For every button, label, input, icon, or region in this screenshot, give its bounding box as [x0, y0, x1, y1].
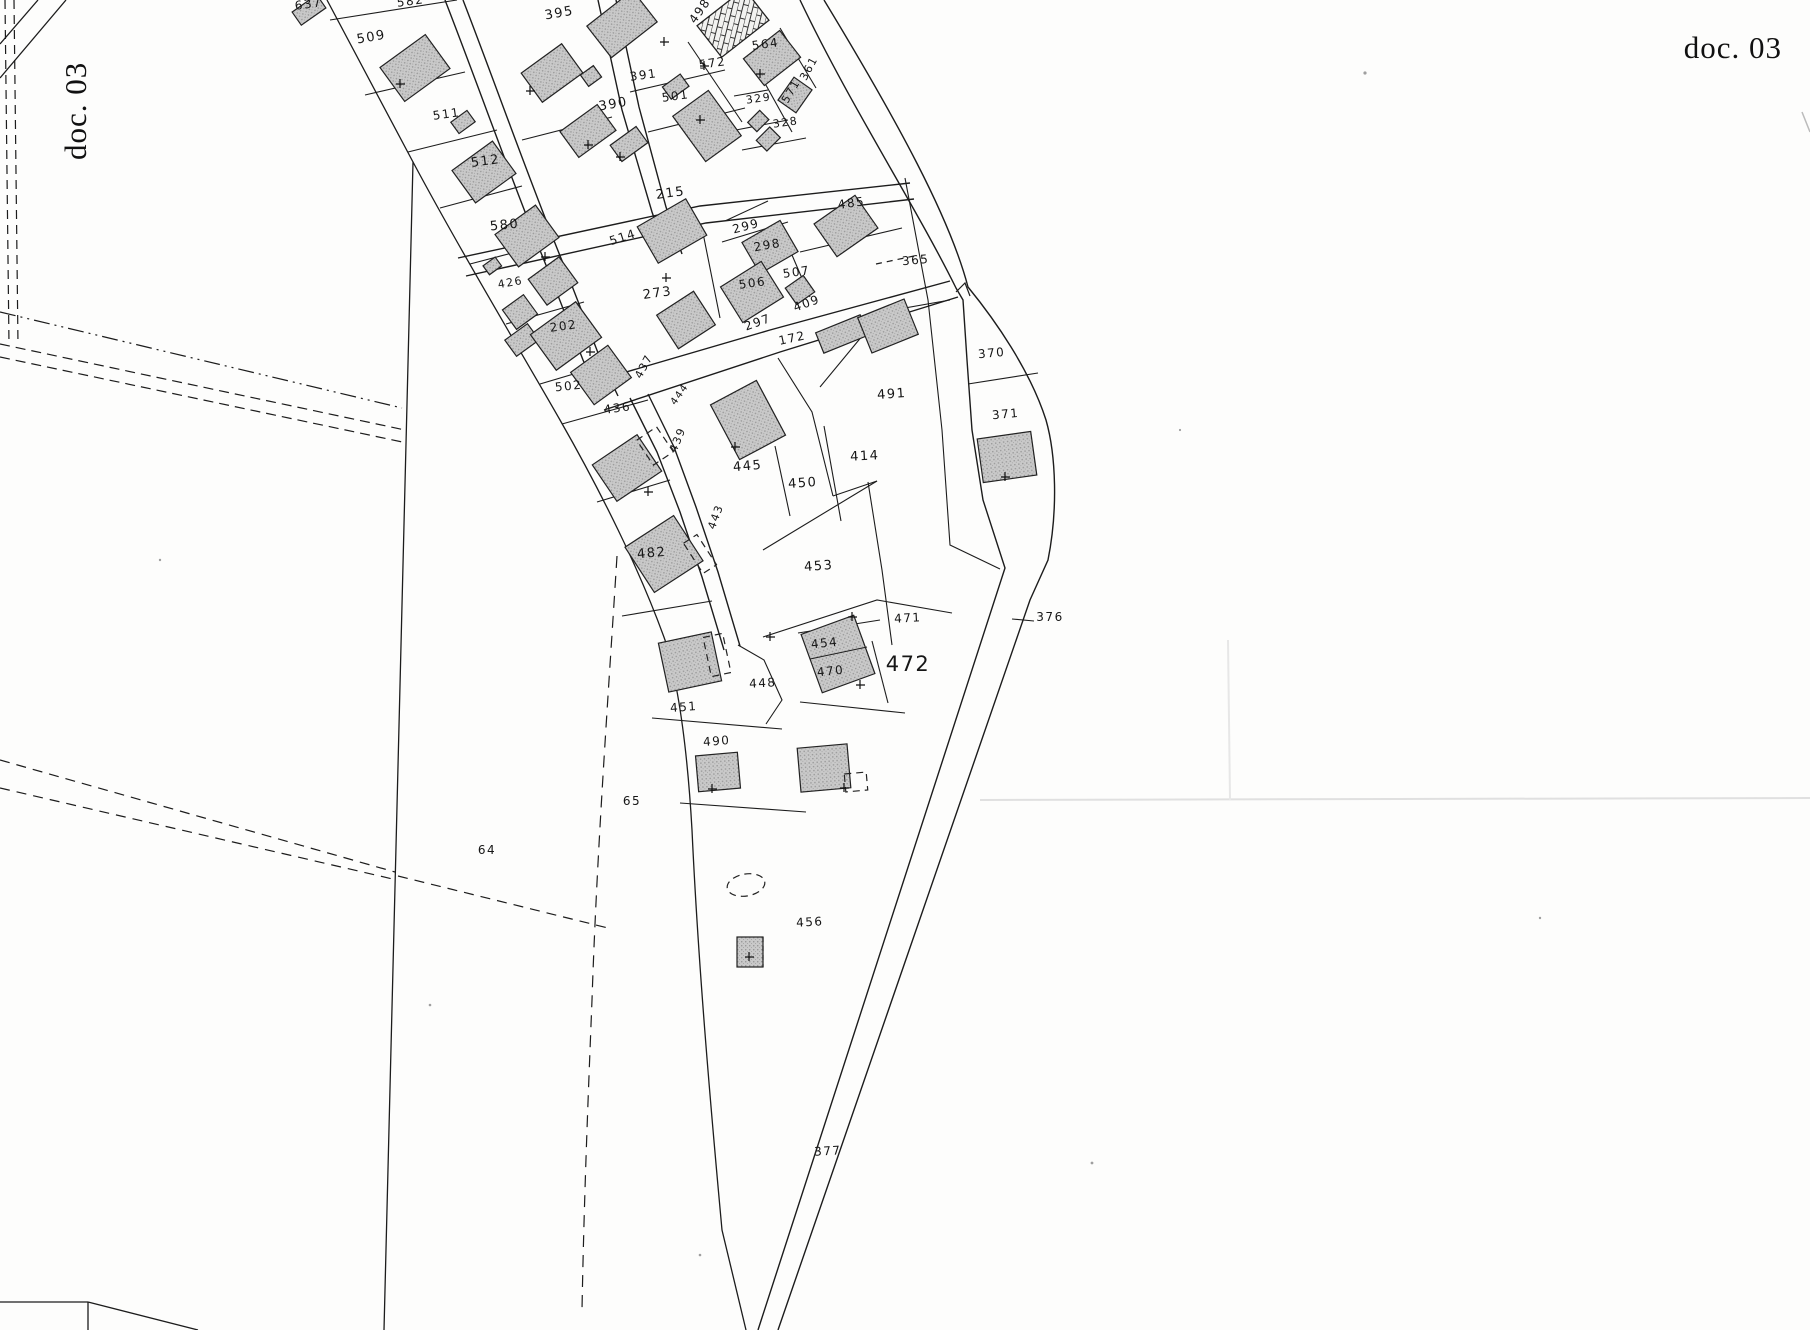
parcel-label-445: 445: [732, 458, 763, 475]
parcel-label-580: 580: [489, 217, 520, 235]
road-inner-edge: [758, 0, 1005, 1330]
parcel-label-365: 365: [901, 252, 930, 268]
dashed-ellipse-mark: [725, 871, 766, 899]
parcel-label-450: 450: [788, 475, 818, 492]
parcel-label-361: 361: [797, 54, 820, 83]
parcel-label-509: 509: [356, 28, 387, 48]
parcel-label-491: 491: [877, 386, 907, 403]
parcel-label-436: 436: [603, 399, 632, 417]
parcel-label-501: 501: [661, 87, 690, 105]
parcel-label-426: 426: [497, 274, 524, 291]
field-boundaries: [0, 0, 746, 1330]
parcel-label-437: 437: [632, 352, 655, 381]
parcel-label-377: 377: [814, 1143, 842, 1158]
parcel-label-215: 215: [655, 184, 686, 203]
long-dashed-boundary: [582, 556, 617, 1310]
parcel-label-514: 514: [608, 226, 638, 248]
parcel-label-443: 443: [705, 503, 726, 531]
parcel-label-layer: 6375825095115125804263953903915014985725…: [294, 0, 1064, 1159]
parcel-label-453: 453: [804, 558, 834, 575]
parcel-label-65: 65: [623, 794, 641, 808]
parcel-label-390: 390: [598, 95, 629, 115]
parcel-label-472: 472: [886, 652, 931, 676]
roads: [445, 0, 1055, 1330]
parcel-label-502: 502: [554, 378, 583, 395]
parcel-label-64: 64: [478, 843, 496, 857]
parcel-label-482: 482: [636, 545, 667, 562]
parcel-label-451: 451: [670, 699, 698, 715]
parcel-label-490: 490: [703, 733, 731, 749]
parcel-label-572: 572: [698, 54, 727, 72]
doc-number-top-right: doc. 03: [1684, 30, 1782, 66]
parcel-label-414: 414: [850, 448, 880, 465]
dashed-field-lines: [0, 0, 914, 1310]
parcel-label-471: 471: [894, 610, 922, 625]
parcel-label-370: 370: [977, 345, 1006, 361]
parcel-label-470: 470: [816, 663, 845, 680]
parcel-label-376: 376: [1036, 610, 1063, 624]
dash-dot-boundary: [0, 312, 402, 408]
parcel-label-456: 456: [796, 914, 824, 929]
parcel-label-329: 329: [745, 90, 772, 106]
parcel-label-454: 454: [810, 635, 839, 652]
parcel-label-395: 395: [544, 4, 575, 24]
parcel-label-507: 507: [782, 263, 811, 281]
main-field-boundary: [327, 0, 413, 1330]
parcel-label-582: 582: [396, 0, 425, 10]
parcel-label-273: 273: [642, 284, 673, 303]
parcel-label-444: 444: [669, 382, 692, 408]
doc-number-left-rotated: doc. 03: [58, 62, 94, 160]
parcel-label-391: 391: [629, 66, 658, 84]
scan-artifacts: [980, 112, 1810, 800]
parcel-label-439: 439: [667, 425, 689, 454]
cadastral-map: 6375825095115125804263953903915014985725…: [0, 0, 1810, 1330]
parcel-label-448: 448: [749, 675, 777, 690]
parcel-label-328: 328: [772, 114, 799, 130]
parcel-label-371: 371: [991, 406, 1020, 422]
scanned-cadastral-page: 6375825095115125804263953903915014985725…: [0, 0, 1810, 1330]
